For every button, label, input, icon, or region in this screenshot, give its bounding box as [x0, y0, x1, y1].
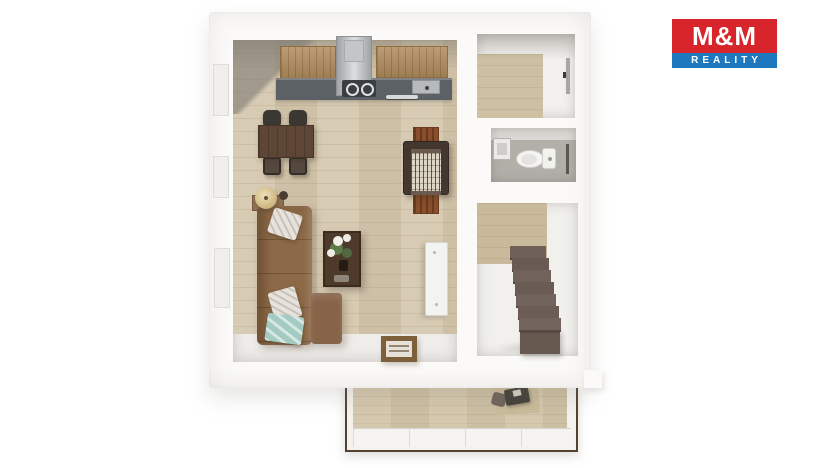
decor-vase	[279, 191, 288, 200]
dining-chair	[263, 157, 281, 175]
hall-wood-floor	[477, 54, 543, 118]
dining-chair	[263, 110, 281, 126]
kitchen-sink	[412, 80, 440, 94]
window-left-upper	[213, 64, 229, 116]
firewood-storage	[413, 194, 439, 214]
staircase-room	[477, 203, 578, 356]
pillow-teal	[264, 313, 305, 346]
logo-subtitle: REALITY	[672, 53, 777, 68]
cooktop	[342, 80, 376, 97]
flush-button-icon	[548, 157, 552, 161]
stair-bottom-step	[520, 330, 560, 354]
radiator	[425, 242, 448, 316]
floor-slab-notch	[584, 370, 602, 388]
sofa-chaise	[311, 293, 342, 344]
kitchen-cabinet-left	[280, 46, 336, 80]
burner-icon	[346, 83, 359, 96]
sink-basin	[497, 143, 507, 155]
entry-door	[566, 58, 570, 94]
wc-door	[566, 144, 569, 174]
plant-icon	[342, 248, 352, 258]
agency-logo: M&M REALITY	[672, 19, 777, 68]
floor-lamp	[255, 187, 277, 209]
dining-chair	[289, 157, 307, 175]
radiator-valve-icon	[435, 303, 438, 306]
stove-grate	[411, 149, 441, 195]
toilet-tank	[542, 148, 556, 169]
window-left-middle	[213, 156, 229, 198]
flower-icon	[327, 249, 335, 257]
lamp-finial	[264, 196, 268, 200]
balcony	[345, 383, 578, 452]
toilet-bowl	[516, 150, 544, 168]
entry-hall	[477, 34, 575, 118]
magazine-table	[381, 336, 417, 362]
wc-sink	[493, 138, 511, 160]
radiator-valve-icon	[433, 251, 436, 254]
vase-icon	[339, 260, 348, 271]
dining-chair	[289, 110, 307, 126]
oven-handle	[386, 95, 418, 99]
drain-icon	[425, 86, 429, 90]
dining-table	[258, 125, 314, 158]
burner-icon	[361, 83, 374, 96]
coffee-table	[323, 231, 361, 287]
logo-title: M&M	[672, 19, 777, 53]
wood-stove	[403, 141, 449, 195]
tray-icon	[334, 275, 349, 282]
table-slats	[389, 345, 409, 354]
toilet-seat	[521, 154, 537, 165]
kitchen-cabinet-right	[376, 46, 448, 78]
balcony-tile-band	[353, 428, 571, 447]
wall-shadow-top	[477, 34, 575, 60]
range-hood-vent	[344, 40, 364, 62]
door-handle-icon	[563, 72, 566, 78]
wc-room	[491, 128, 576, 182]
window-left-lower	[214, 248, 230, 308]
flower-icon	[343, 234, 351, 242]
flower-icon	[333, 236, 343, 246]
floorplan-render: M&M REALITY	[0, 0, 832, 468]
